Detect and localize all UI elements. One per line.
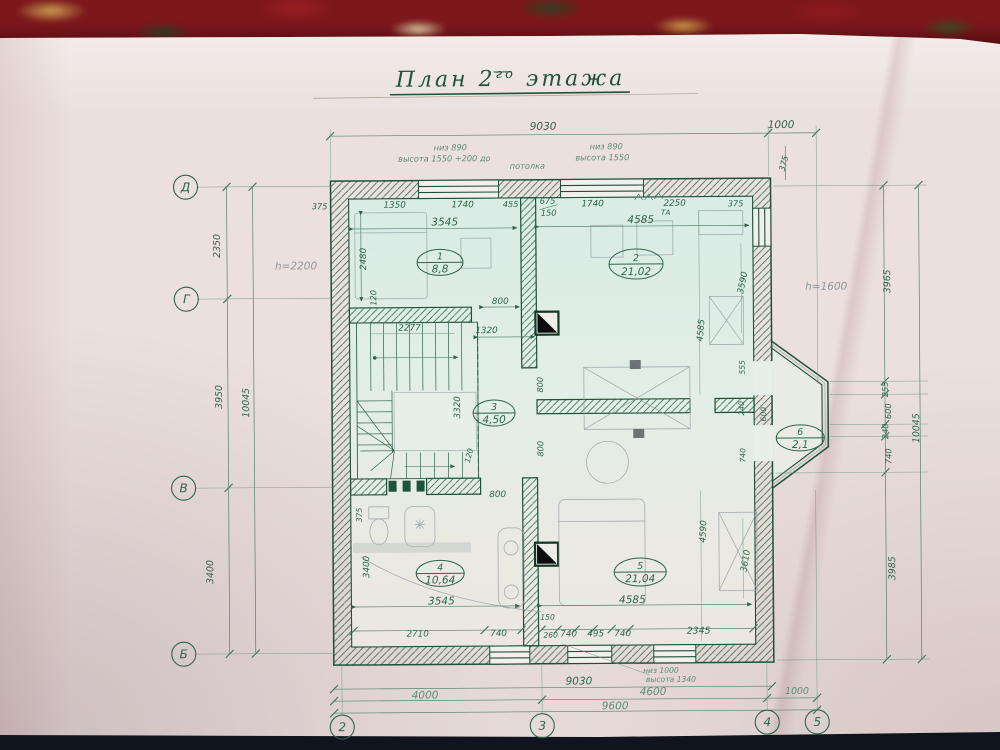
dim-255: 255	[880, 381, 890, 397]
room-2-number: 2	[633, 253, 639, 264]
dim-3320: 3320	[453, 396, 463, 419]
dim-800-door2: 800	[535, 377, 545, 393]
dim-4590: 4590	[698, 520, 709, 543]
dim-4600: 4600	[640, 686, 667, 698]
axis-label-5: 5	[813, 715, 821, 729]
dim-3400-left: 3400	[205, 560, 216, 584]
dim-375-topright-rot: 375	[777, 154, 791, 172]
axis-label-g: Г	[183, 292, 191, 306]
dim-4585-room2-vert: 4585	[696, 318, 708, 342]
dim-800-door3: 800	[535, 441, 545, 457]
dim-240-right: 240	[880, 423, 890, 439]
dim-375-room4: 375	[355, 508, 364, 523]
title-part1: План 2	[395, 67, 496, 93]
dim-3965: 3965	[882, 269, 893, 293]
dim-800-room1door: 800	[492, 297, 509, 307]
dim-2350: 2350	[212, 234, 223, 258]
room-label-1: 1 8,8	[417, 249, 463, 275]
bay-opening-upper	[753, 361, 773, 395]
dim-375-topleft: 375	[312, 201, 328, 211]
note-window-left-1: низ 890	[434, 142, 467, 152]
dim-375-topright: 375	[728, 198, 744, 208]
dim-1350: 1350	[383, 201, 406, 211]
title-superscript: го	[495, 67, 516, 82]
dim-1740-left: 1740	[451, 200, 474, 210]
dim-740-b2: 740	[614, 629, 631, 639]
door-marks	[389, 481, 425, 492]
room-label-2: 2 21,02	[609, 249, 663, 279]
room-6-number: 6	[797, 427, 803, 438]
dim-555: 555	[738, 360, 747, 375]
dim-455: 455	[503, 199, 519, 209]
dim-120-room1: 120	[368, 290, 378, 306]
dim-675: 675	[540, 196, 556, 206]
dim-3545-room1: 3545	[431, 216, 458, 228]
dim-3950: 3950	[214, 385, 225, 409]
dim-260-wall: 260	[543, 631, 558, 640]
floor-plan-drawing: 9030 1000 375 375 375 низ 890 высота 155…	[0, 0, 1000, 750]
dim-150-frac: 150	[541, 208, 557, 218]
dim-top-9030: 9030	[530, 121, 557, 133]
svg-text:План 2го этажа: План 2го этажа	[395, 66, 626, 93]
room-4-number: 4	[437, 562, 443, 573]
dim-top-1000: 1000	[768, 119, 795, 131]
wall-stair-room4-b	[427, 478, 481, 494]
room-label-3: 3 4,50	[473, 400, 515, 426]
room-6-area: 2,1	[792, 439, 809, 451]
note-window-bottom-2: высота 1340	[646, 675, 696, 684]
axis-label-2: 2	[338, 720, 346, 734]
window-right	[753, 208, 771, 246]
stair-void	[394, 392, 476, 451]
wall-room1-stair	[349, 307, 471, 323]
axis-label-v: В	[179, 481, 187, 495]
dim-740-room4: 740	[490, 629, 507, 639]
axis-label-d: Д	[180, 180, 190, 194]
dim-bottom-1000: 1000	[785, 686, 809, 697]
dim-600-right: 600	[883, 403, 893, 419]
title-part2: этажа	[516, 66, 626, 92]
dim-2345: 2345	[687, 626, 711, 637]
room-4-area: 10,64	[425, 574, 455, 586]
room-1-area: 8,8	[432, 263, 449, 275]
axis-label-b: Б	[180, 647, 188, 661]
window-bottom-3	[654, 645, 696, 663]
note-height-right: h=1600	[805, 281, 848, 293]
room-label-5: 5 21,04	[614, 558, 666, 586]
vent-flue-icon-lower	[535, 543, 558, 566]
axis-label-4: 4	[763, 715, 771, 729]
note-window-right-1: низ 890	[590, 141, 623, 151]
dim-740-b1: 740	[560, 629, 577, 639]
wall-stair-room4-a	[351, 479, 387, 495]
dim-3545-room4: 3545	[428, 595, 455, 607]
note-window-bottom-1: низ 1000	[643, 666, 679, 675]
note-window-left-3: потолка	[510, 161, 545, 171]
dim-800-door4: 800	[489, 490, 506, 500]
wall-axis3-upper	[521, 198, 537, 368]
wall-rooms2-5-a	[537, 399, 690, 414]
dim-240-bay: 240	[737, 401, 746, 416]
note-window-right-2: высота 1550	[575, 152, 629, 162]
room-1-number: 1	[437, 251, 443, 262]
dim-2480: 2480	[359, 247, 369, 270]
note-window-left-2: высота 1550 +200 до	[398, 153, 490, 164]
wall-rooms2-5-b	[715, 398, 754, 412]
room-3-area: 4,50	[482, 414, 506, 426]
dim-600-bay: 600	[759, 407, 768, 422]
drawing-title: План 2го этажа	[313, 66, 698, 99]
dim-10045-left: 10045	[241, 388, 252, 418]
room-5-area: 21,04	[625, 573, 655, 585]
dim-2710: 2710	[406, 629, 429, 639]
dim-4000: 4000	[412, 689, 439, 701]
dim-4585-room5: 4585	[619, 594, 646, 606]
dim-4585-room2: 4585	[627, 214, 654, 226]
dim-bottom-9030: 9030	[566, 675, 593, 687]
dim-740-right: 740	[883, 448, 893, 464]
window-bottom-1	[490, 646, 530, 664]
note-ta: ТА	[661, 208, 670, 217]
dim-9600: 9600	[602, 700, 629, 712]
dim-495: 495	[587, 629, 604, 639]
window-top-right	[560, 179, 643, 198]
bay-opening-lower	[753, 425, 773, 461]
dim-3400-room4: 3400	[362, 555, 372, 578]
room-label-4: 4 10,64	[416, 560, 464, 586]
vent-flue-icon-upper	[535, 312, 558, 335]
dim-2277: 2277	[398, 324, 421, 334]
dim-740-bay: 740	[738, 448, 747, 463]
note-height-left: h=2200	[275, 260, 318, 272]
dim-1740-right: 1740	[581, 199, 604, 209]
window-top-left	[418, 180, 498, 199]
dim-10045-right: 10045	[911, 413, 922, 443]
dim-3985: 3985	[887, 556, 898, 580]
dim-1320: 1320	[475, 326, 498, 336]
room-2-area: 21,02	[621, 266, 651, 278]
room-3-number: 3	[491, 402, 497, 413]
room-5-number: 5	[637, 561, 643, 572]
axis-label-3: 3	[538, 719, 546, 733]
dim-150-wall: 150	[540, 613, 555, 622]
room-label-6: 6 2,1	[776, 425, 824, 451]
